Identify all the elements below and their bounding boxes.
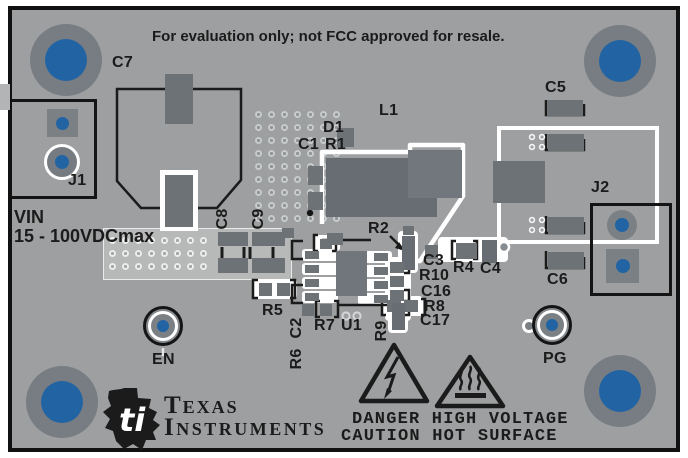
refdes-c4: C4 bbox=[480, 261, 501, 277]
eval-notice: For evaluation only; not FCC approved fo… bbox=[152, 28, 505, 45]
refdes-r9: R9 bbox=[374, 316, 390, 346]
r4-part bbox=[456, 243, 477, 259]
vin-rating: 15 - 100VDCmax bbox=[14, 226, 154, 247]
c9-pad bbox=[252, 258, 285, 273]
u1-pin-pad bbox=[305, 279, 319, 287]
refdes-j1: J1 bbox=[68, 173, 86, 189]
refdes-c17: C17 bbox=[420, 313, 450, 329]
output-cap bbox=[548, 134, 584, 151]
j2-round-pad bbox=[607, 210, 637, 240]
c7-pad bbox=[165, 74, 193, 124]
j1-square-pad bbox=[47, 109, 78, 137]
j2-square-pad bbox=[606, 249, 639, 283]
en-label: EN bbox=[152, 352, 175, 368]
output-cap bbox=[548, 217, 584, 234]
refdes-j2: J2 bbox=[591, 180, 609, 196]
refdes-c7: C7 bbox=[112, 55, 133, 71]
refdes-r2: R2 bbox=[368, 221, 389, 237]
refdes-r4: R4 bbox=[453, 260, 474, 276]
refdes-c1: C1 bbox=[298, 137, 319, 153]
r5-part bbox=[277, 283, 290, 296]
mounting-hole bbox=[584, 355, 656, 427]
mounting-hole bbox=[26, 366, 98, 438]
refdes-c5: C5 bbox=[545, 80, 566, 96]
pg-label: PG bbox=[543, 351, 567, 367]
warning-line-2: CAUTION HOT SURFACE bbox=[341, 427, 558, 446]
edge-tab bbox=[0, 84, 10, 110]
c16-part bbox=[390, 276, 404, 287]
refdes-c6: C6 bbox=[547, 272, 568, 288]
refdes-r6: R6 bbox=[289, 344, 305, 374]
l1-side-pad bbox=[308, 166, 323, 185]
pcb-photo: ti bbox=[0, 0, 688, 458]
smd-pad bbox=[404, 300, 418, 312]
vout-big-pad bbox=[493, 161, 545, 203]
vin-label: VIN bbox=[14, 207, 44, 228]
r9-part bbox=[392, 303, 405, 330]
u1-pin-pad bbox=[374, 267, 388, 275]
c6-part bbox=[548, 252, 584, 269]
c9-pad bbox=[252, 232, 285, 246]
refdes-r5: R5 bbox=[262, 303, 283, 319]
u1-pin-pad bbox=[374, 281, 388, 289]
c5-part bbox=[547, 100, 583, 116]
via-group bbox=[527, 132, 546, 151]
refdes-d1: D1 bbox=[323, 120, 344, 136]
refdes-u1: U1 bbox=[341, 318, 362, 334]
refdes-l1: L1 bbox=[379, 103, 398, 119]
via-group bbox=[527, 215, 546, 234]
r7-part bbox=[320, 304, 332, 316]
refdes-r1: R1 bbox=[325, 137, 346, 153]
smd-pad bbox=[327, 233, 343, 245]
refdes-c2: C2 bbox=[289, 313, 305, 343]
u1-pin-pad bbox=[374, 253, 388, 261]
u1-pin-pad bbox=[305, 293, 319, 301]
pg-test-point bbox=[532, 305, 572, 345]
refdes-r10: R10 bbox=[419, 268, 449, 284]
r10-part bbox=[390, 262, 404, 273]
l1-inductor-top bbox=[408, 150, 462, 198]
c8-pad bbox=[218, 258, 248, 273]
u1-ic-body bbox=[336, 251, 367, 296]
refdes-c9: C9 bbox=[251, 204, 267, 234]
en-test-point bbox=[143, 306, 183, 346]
mounting-hole bbox=[30, 24, 102, 96]
l1-side-pad bbox=[308, 192, 323, 210]
r5-part bbox=[259, 283, 272, 296]
smd-pad bbox=[403, 226, 414, 235]
u1-pin-pad bbox=[305, 251, 319, 259]
u1-pin-pad bbox=[374, 295, 388, 303]
mounting-hole bbox=[584, 25, 656, 97]
u1-pin-pad bbox=[305, 265, 319, 273]
smd-pad bbox=[282, 228, 294, 238]
c7-pad bbox=[165, 175, 193, 227]
c8-pad bbox=[218, 232, 248, 246]
brand-word-instruments: Instruments bbox=[164, 414, 326, 442]
refdes-c8: C8 bbox=[215, 204, 231, 234]
refdes-r7: R7 bbox=[314, 318, 335, 334]
